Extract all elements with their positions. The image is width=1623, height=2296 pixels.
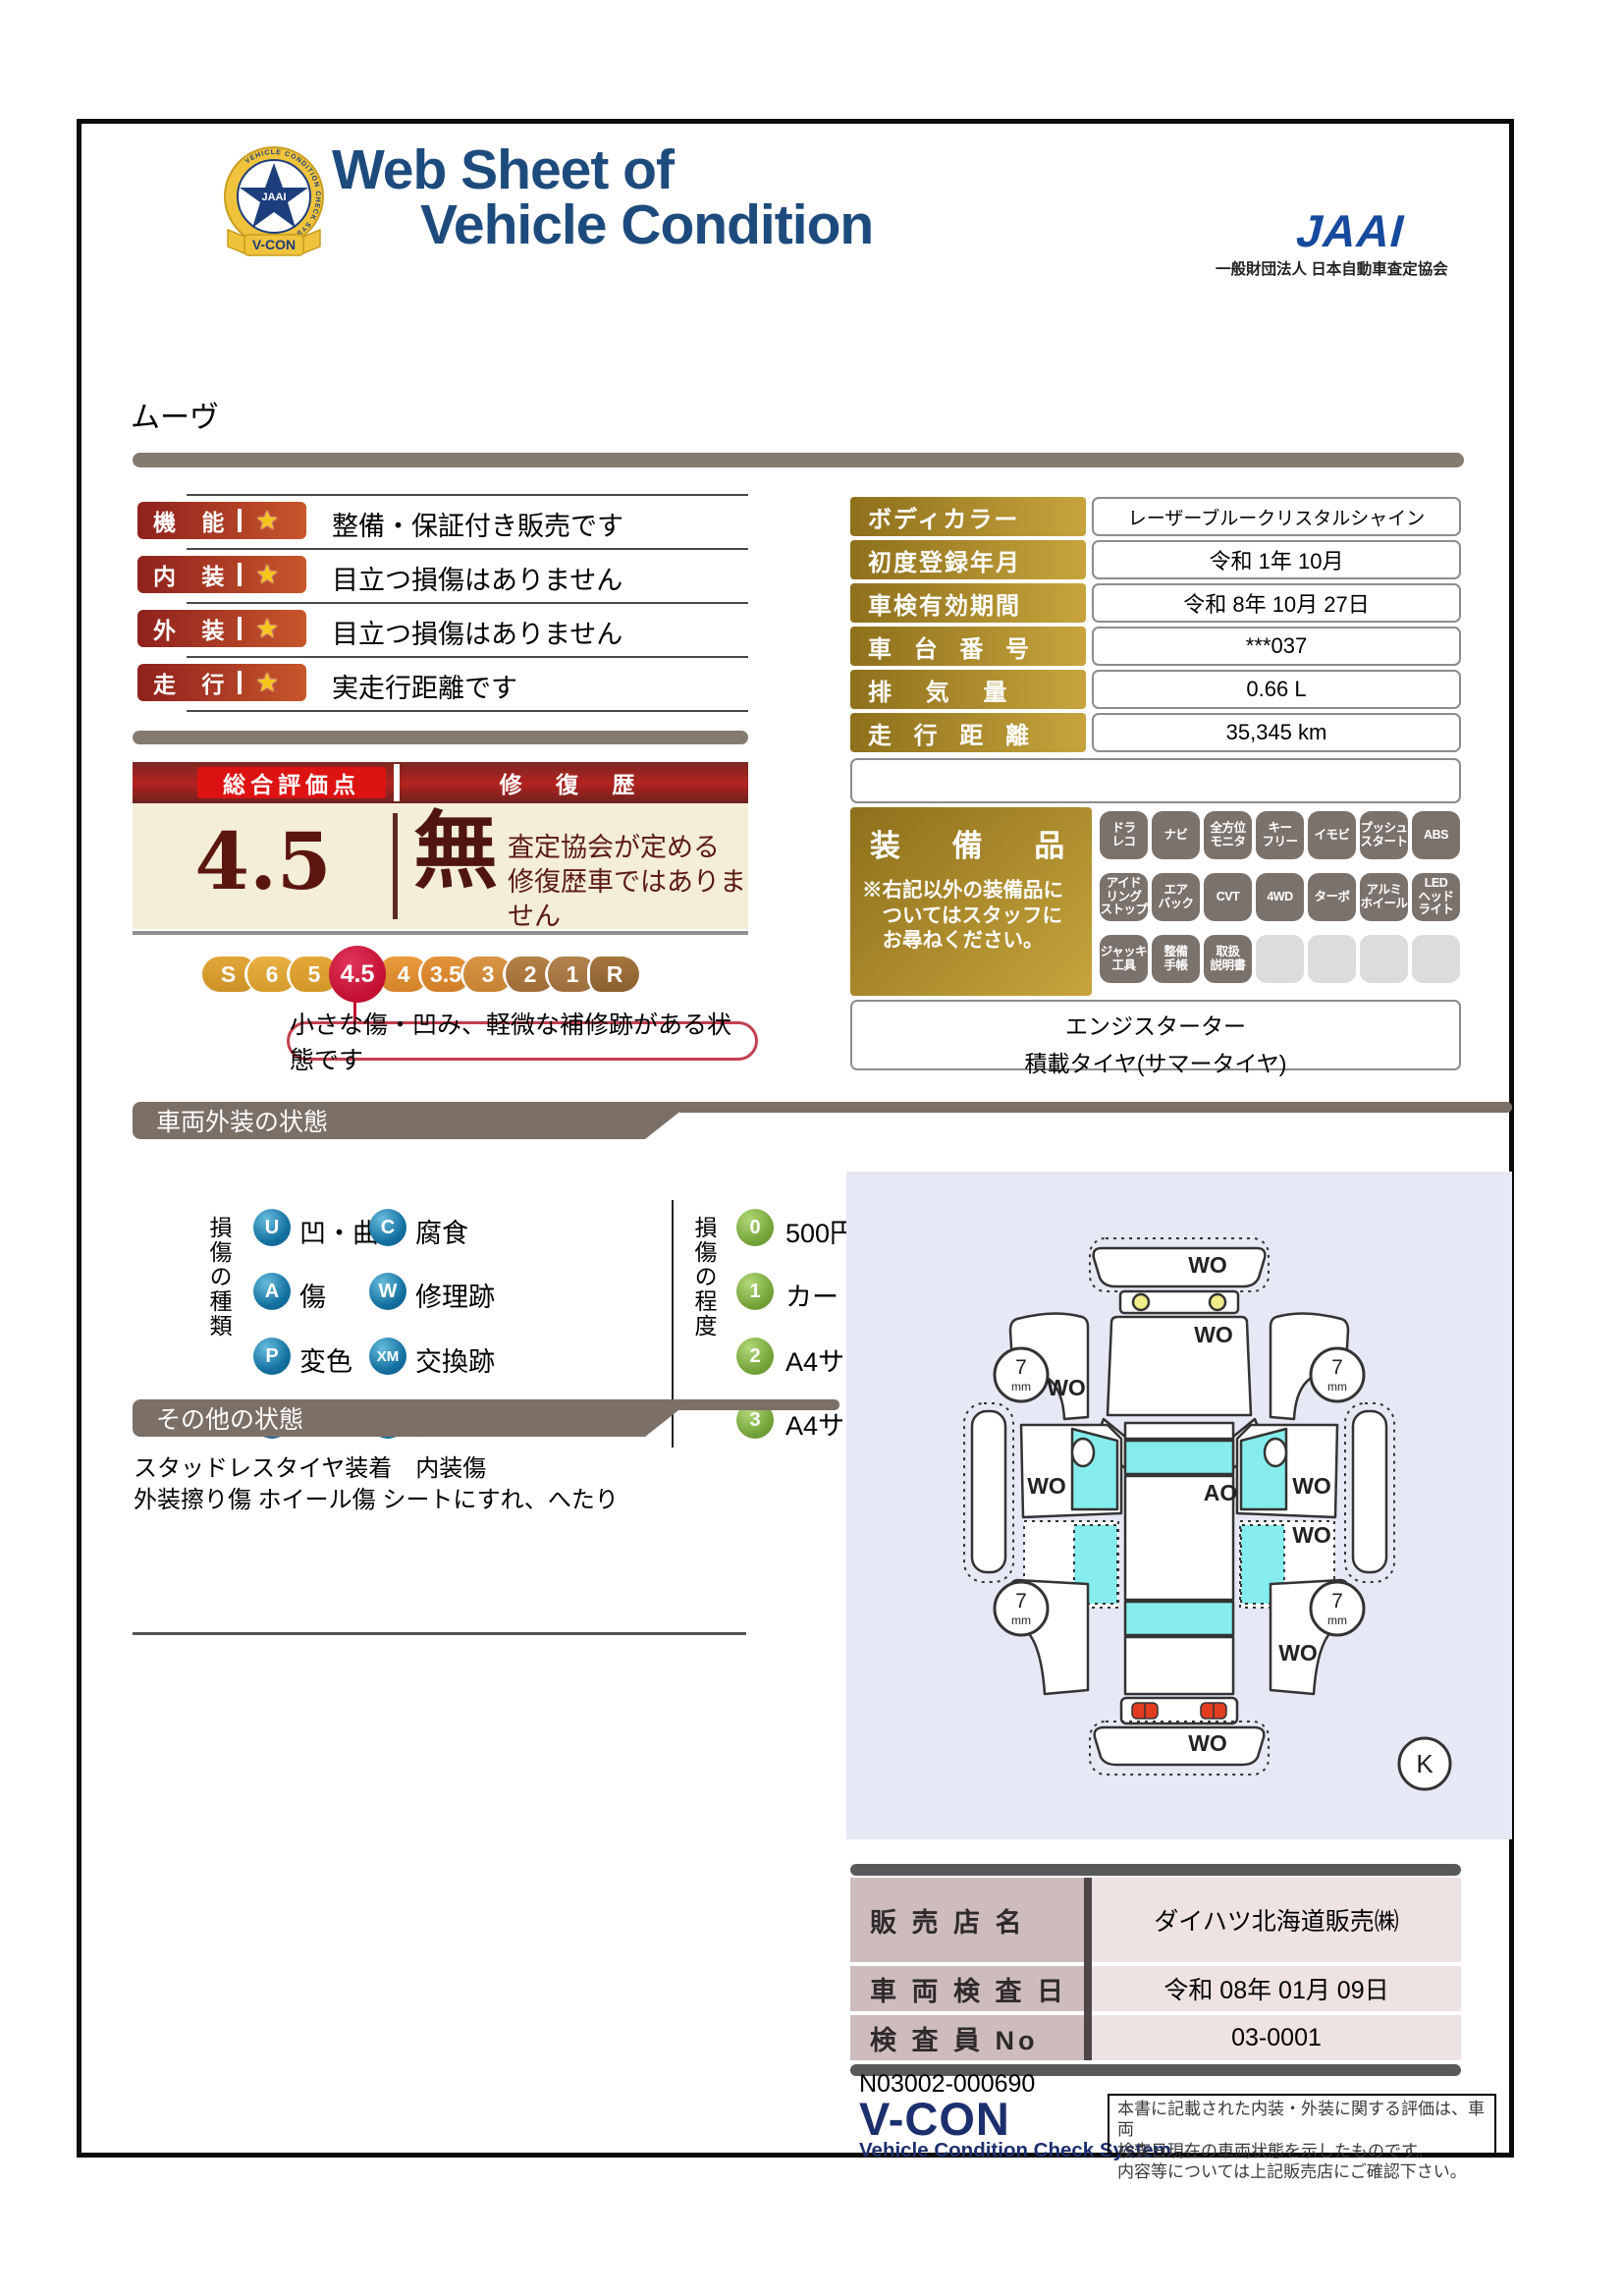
dealer-table-divider bbox=[1084, 1878, 1092, 2060]
other-condition-text: スタッドレスタイヤ装着 内装傷 外装擦り傷 ホイール傷 シートにすれ、へたり bbox=[134, 1453, 619, 1517]
rating-label: 内 装 bbox=[137, 558, 238, 591]
vehicle-name: ムーヴ bbox=[131, 393, 219, 436]
damage-kind-label: 変色 bbox=[299, 1340, 352, 1379]
section-other-banner: その他の状態 bbox=[133, 1399, 692, 1437]
jaai-logo: JAAI bbox=[1291, 204, 1411, 257]
damage-degree-code: 0 bbox=[736, 1209, 774, 1246]
equipment-extra-1: エンジスターター bbox=[852, 1008, 1459, 1041]
label-roof-center: AO bbox=[1204, 1480, 1238, 1505]
equipment-badge-empty bbox=[1360, 935, 1408, 983]
equipment-note: ※右記以外の装備品に ついてはスタッフに お尋ねください。 bbox=[862, 878, 1063, 954]
overall-score-header: 総合評価点 修 復 歴 bbox=[133, 762, 748, 803]
equipment-extra-2: 積載タイヤ(サマータイヤ) bbox=[852, 1045, 1459, 1078]
star-icon: ★ bbox=[255, 506, 279, 536]
rating-divider bbox=[187, 656, 748, 658]
section-exterior-title: 車両外装の状態 bbox=[156, 1103, 328, 1138]
divider-bar bbox=[133, 731, 748, 744]
rating-comment: 整備・保証付き販売です bbox=[332, 505, 623, 543]
info-label-chassis-number: 車 台 番 号 bbox=[850, 627, 1086, 666]
damage-degree-code: 2 bbox=[736, 1338, 774, 1375]
info-label-first-registration: 初度登録年月 bbox=[850, 540, 1086, 579]
damage-kind-code: C bbox=[369, 1209, 406, 1246]
rating-divider bbox=[187, 548, 748, 550]
rating-divider bbox=[187, 602, 748, 604]
equipment-badge-empty bbox=[1412, 935, 1460, 983]
vehicle-condition-sheet: VEHICLE CONDITION CHECK SYSTEM JAAI V-CO… bbox=[0, 0, 1623, 2296]
info-value-inspection-valid: 令和 8年 10月 27日 bbox=[1092, 583, 1461, 623]
damage-kind-label: 傷 bbox=[299, 1276, 326, 1314]
info-label-mileage: 走 行 距 離 bbox=[850, 713, 1086, 752]
equipment-badge: エア バック bbox=[1152, 873, 1200, 921]
equipment-badge: アルミ ホイール bbox=[1360, 873, 1408, 921]
page-title-line2: Vehicle Condition bbox=[420, 192, 873, 257]
info-value-chassis-number: ***037 bbox=[1092, 627, 1461, 666]
rating-comment: 実走行距離です bbox=[332, 667, 517, 705]
equipment-badge-empty bbox=[1308, 935, 1356, 983]
equipment-badge: LED ヘッド ライト bbox=[1412, 873, 1460, 921]
equipment-badge: 4WD bbox=[1256, 873, 1304, 921]
equipment-extra-box: エンジスターター 積載タイヤ(サマータイヤ) bbox=[850, 1000, 1461, 1070]
rating-row-mileage: 走 行 ★ bbox=[137, 664, 306, 701]
tire-depth-unit: mm bbox=[1327, 1380, 1347, 1394]
damage-kind-code: XM bbox=[369, 1338, 406, 1375]
star-icon: ★ bbox=[255, 668, 279, 698]
vcon-logo: V-CON bbox=[859, 2092, 1010, 2146]
tire-depth-unit: mm bbox=[1327, 1613, 1347, 1627]
scale-seg-r: R bbox=[587, 957, 639, 992]
dealer-table-top-bar bbox=[850, 1864, 1461, 1876]
equipment-label: 装 備 品 bbox=[870, 821, 1086, 865]
equipment-badge: 取扱 説明書 bbox=[1204, 935, 1252, 983]
damage-kind-title: 損傷の種類 bbox=[202, 1216, 236, 1339]
tire-depth-unit: mm bbox=[1011, 1380, 1031, 1394]
damage-kind-code: P bbox=[253, 1338, 291, 1375]
rating-divider bbox=[187, 494, 748, 496]
label-left-fender: WO bbox=[1047, 1375, 1086, 1400]
equipment-badge: ジャッキ 工具 bbox=[1100, 935, 1148, 983]
rating-divider-bar bbox=[238, 509, 242, 532]
info-value-displacement: 0.66 L bbox=[1092, 670, 1461, 709]
damage-kind-label: 修理跡 bbox=[415, 1276, 495, 1314]
label-front-bumper: WO bbox=[1188, 1252, 1227, 1278]
tire-depth-value: 7 bbox=[1331, 1590, 1343, 1613]
rating-label: 機 能 bbox=[137, 504, 238, 537]
score-scale: S 6 5 4.5 4 3.5 3 2 1 R bbox=[202, 957, 639, 1003]
dealer-label-shop: 販 売 店 名 bbox=[850, 1878, 1084, 1962]
damage-kind-code: U bbox=[253, 1209, 291, 1246]
equipment-badge: CVT bbox=[1204, 873, 1252, 921]
equipment-badge: 全方位 モニタ bbox=[1204, 811, 1252, 859]
equipment-badge: ドラ レコ bbox=[1100, 811, 1148, 859]
vcon-badge-icon: VEHICLE CONDITION CHECK SYSTEM JAAI V-CO… bbox=[214, 143, 334, 267]
rating-comment: 目立つ損傷はありません bbox=[332, 559, 622, 597]
rating-row-exterior: 外 装 ★ bbox=[137, 610, 306, 647]
label-rear-bumper: WO bbox=[1188, 1730, 1227, 1756]
equipment-badge-empty bbox=[1256, 935, 1304, 983]
rating-row-interior: 内 装 ★ bbox=[137, 556, 306, 593]
equipment-section: 装 備 品 ※右記以外の装備品に ついてはスタッフに お尋ねください。 bbox=[850, 807, 1092, 996]
info-value-first-registration: 令和 1年 10月 bbox=[1092, 540, 1461, 579]
star-icon: ★ bbox=[255, 614, 279, 644]
banner-extension bbox=[676, 1399, 839, 1410]
info-value-body-color: レーザーブルークリスタルシャイン bbox=[1092, 497, 1461, 536]
rating-comment: 目立つ損傷はありません bbox=[332, 613, 622, 651]
dealer-label-inspector-no: 検 査 員 No bbox=[850, 2015, 1084, 2060]
rating-row-function: 機 能 ★ bbox=[137, 502, 306, 539]
star-icon: ★ bbox=[255, 560, 279, 590]
section-other-title: その他の状態 bbox=[156, 1400, 303, 1436]
damage-degree-title: 損傷の程度 bbox=[687, 1216, 721, 1339]
info-label-body-color: ボディカラー bbox=[850, 497, 1086, 536]
rating-divider bbox=[187, 710, 748, 712]
disclaimer-box: 本書に記載された内装・外装に関する評価は、車両 検査日現在の車両状態を示したもの… bbox=[1108, 2094, 1496, 2155]
body-divider bbox=[393, 813, 398, 919]
equipment-badge: イモビ bbox=[1308, 811, 1356, 859]
equipment-badge: キー フリー bbox=[1256, 811, 1304, 859]
damage-degree-code: 1 bbox=[736, 1273, 774, 1310]
key-mark: K bbox=[1416, 1749, 1434, 1778]
repair-history-label: 修 復 歴 bbox=[400, 762, 748, 803]
info-empty-box bbox=[850, 758, 1461, 803]
banner-extension bbox=[676, 1102, 1512, 1113]
scale-comment: 小さな傷・凹み、軽微な補修跡がある状態です bbox=[287, 1021, 758, 1061]
damage-kind-label: 腐食 bbox=[415, 1212, 468, 1250]
label-hood: WO bbox=[1194, 1322, 1233, 1347]
rating-divider-bar bbox=[238, 617, 242, 640]
overall-score-body: 4.5 無 査定協会が定める 修復歴車ではありません bbox=[133, 803, 748, 929]
equipment-badge: ターボ bbox=[1308, 873, 1356, 921]
damage-kind-label: 交換跡 bbox=[415, 1340, 495, 1379]
info-label-inspection-valid: 車検有効期間 bbox=[850, 583, 1086, 623]
car-damage-diagram: WO WO WO WO WO WO WO WO AO 7 mm 7 mm 7 m… bbox=[846, 1172, 1512, 1839]
label-right-rear-quarter: WO bbox=[1278, 1640, 1318, 1666]
rating-label: 外 装 bbox=[137, 612, 238, 645]
damage-kind-code: A bbox=[253, 1273, 291, 1310]
overall-score-value: 4.5 bbox=[133, 815, 394, 907]
info-value-mileage: 35,345 km bbox=[1092, 713, 1461, 752]
repair-history-note: 査定協会が定める 修復歴車ではありません bbox=[508, 831, 748, 934]
tire-depth-value: 7 bbox=[1015, 1356, 1027, 1379]
info-label-displacement: 排 気 量 bbox=[850, 670, 1086, 709]
equipment-badge: ナビ bbox=[1152, 811, 1200, 859]
equipment-badge: プッシュ スタート bbox=[1360, 811, 1408, 859]
dealer-value-inspection-date: 令和 08年 01月 09日 bbox=[1092, 1966, 1461, 2011]
rating-label: 走 行 bbox=[137, 666, 238, 699]
dealer-value-shop: ダイハツ北海道販売㈱ bbox=[1092, 1878, 1461, 1962]
section-exterior-banner: 車両外装の状態 bbox=[133, 1102, 692, 1139]
tire-depth-value: 7 bbox=[1331, 1356, 1343, 1379]
divider-line bbox=[133, 931, 748, 935]
repair-history-value: 無 bbox=[413, 809, 498, 894]
badge-vcon-text: V-CON bbox=[252, 237, 296, 252]
equipment-badges: ドラ レコ ナビ 全方位 モニタ キー フリー イモビ プッシュ スタート AB… bbox=[1100, 811, 1464, 983]
divider-line bbox=[133, 1632, 746, 1635]
damage-kind-code: W bbox=[369, 1273, 406, 1310]
tire-depth-value: 7 bbox=[1015, 1590, 1027, 1613]
tire-depth-unit: mm bbox=[1011, 1613, 1031, 1627]
dealer-label-inspection-date: 車 両 検 査 日 bbox=[850, 1966, 1084, 2011]
label-right-front-door: WO bbox=[1292, 1473, 1331, 1499]
label-right-rear-door: WO bbox=[1292, 1522, 1331, 1548]
overall-score-label: 総合評価点 bbox=[197, 767, 386, 798]
rating-divider-bar bbox=[238, 671, 242, 694]
divider-bar bbox=[133, 453, 1464, 467]
jaai-organization: 一般財団法人 日本自動車査定協会 bbox=[1216, 257, 1448, 279]
equipment-badge: ABS bbox=[1412, 811, 1460, 859]
equipment-badge: アイド リング ストップ bbox=[1100, 873, 1148, 921]
label-left-front-door: WO bbox=[1027, 1473, 1066, 1499]
badge-center-text: JAAI bbox=[261, 191, 286, 203]
dealer-value-inspector-no: 03-0001 bbox=[1092, 2015, 1461, 2060]
scale-selected-4-5: 4.5 bbox=[329, 946, 386, 1003]
rating-divider-bar bbox=[238, 563, 242, 586]
equipment-badge: 整備 手帳 bbox=[1152, 935, 1200, 983]
damage-kind-label: 凹・曲 bbox=[299, 1212, 379, 1250]
